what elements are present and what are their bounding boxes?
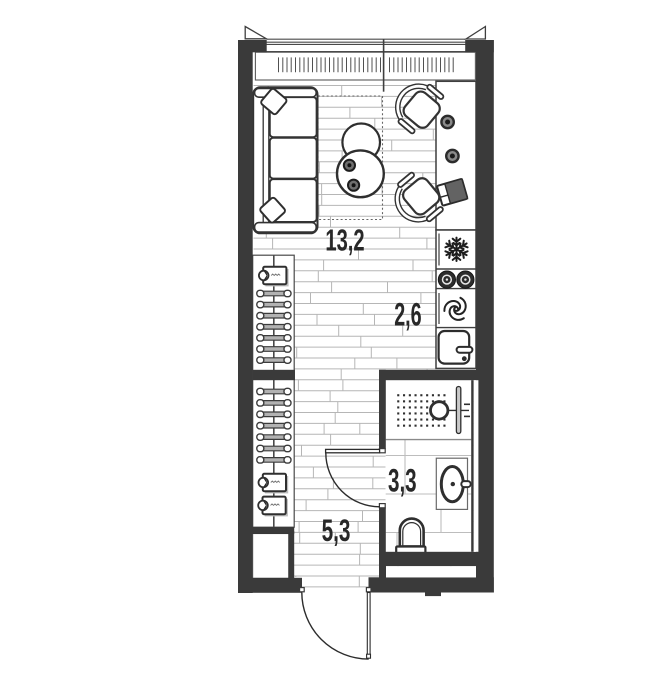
svg-text:2,6: 2,6 <box>394 297 421 333</box>
svg-text:3,3: 3,3 <box>388 462 417 498</box>
svg-text:5,3: 5,3 <box>322 512 351 548</box>
svg-text:13,2: 13,2 <box>325 222 364 257</box>
